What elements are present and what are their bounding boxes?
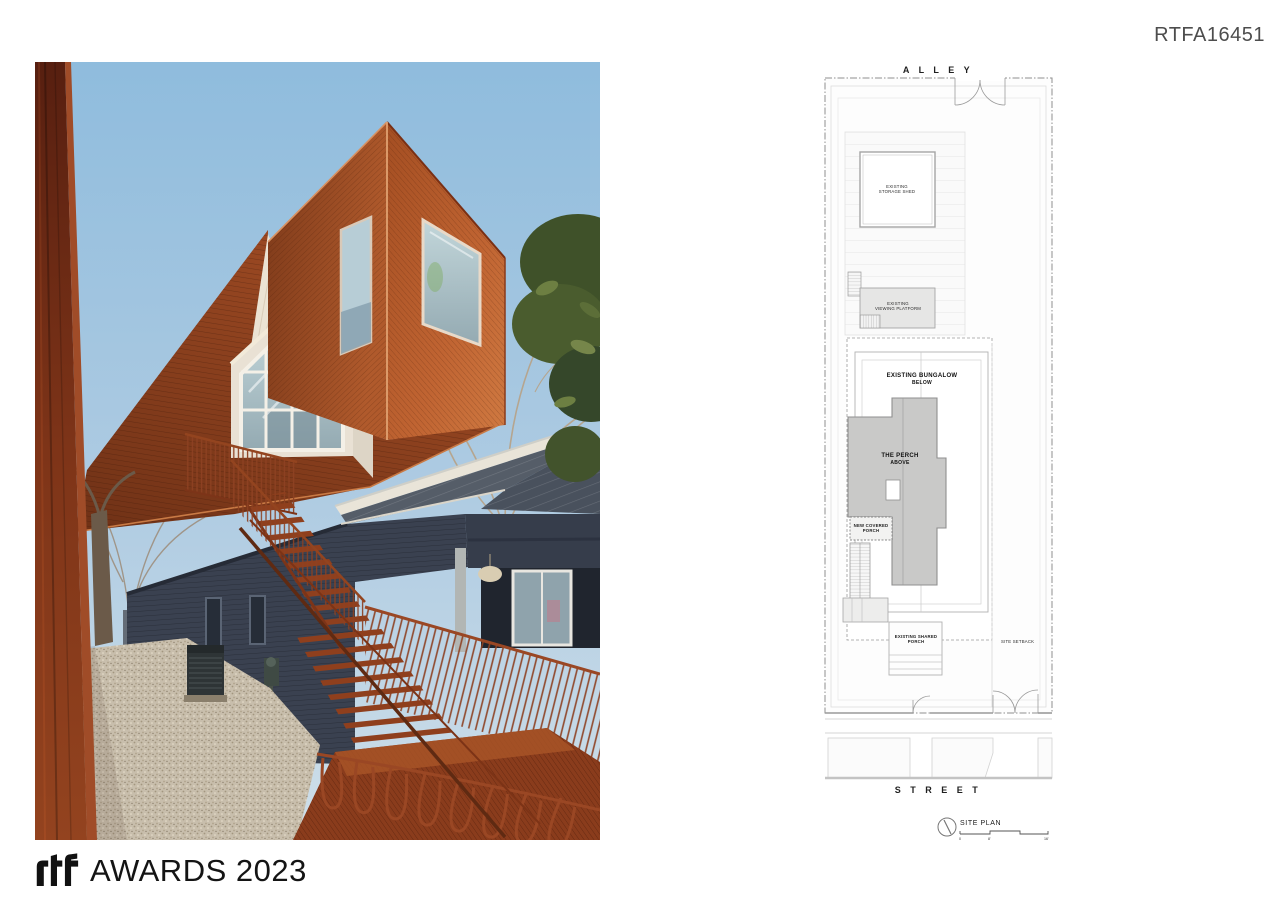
platform-label-2: VIEWING PLATFORM [875, 306, 921, 311]
street-label: S T R E E T [895, 785, 982, 795]
bungalow-window [206, 598, 221, 646]
footer-brand: AWARDS 2023 [35, 852, 307, 890]
scale-tick-1: 8' [988, 837, 991, 841]
site-plan-drawing: A L L E Y EXISTING STORAGE SHED [815, 55, 1065, 855]
new-covered-porch: NEW COVERED PORCH [850, 517, 892, 540]
viewing-platform: EXISTING VIEWING PLATFORM [860, 288, 935, 328]
presentation-board: RTFA16451 [0, 0, 1273, 900]
site-plan-svg: A L L E Y EXISTING STORAGE SHED [815, 55, 1065, 855]
bungalow-label-2: BELOW [912, 380, 932, 386]
scale-tick-0: 0 [959, 837, 961, 841]
photo-scene [35, 62, 600, 840]
platform-stair [848, 272, 861, 296]
storage-shed: EXISTING STORAGE SHED [860, 152, 935, 227]
ac-unit [184, 645, 227, 702]
shared-porch-label-2: PORCH [908, 639, 925, 644]
perch-label-1: THE PERCH [881, 453, 918, 459]
scale-bar [960, 831, 1048, 834]
bungalow-label-1: EXISTING BUNGALOW [887, 373, 958, 379]
alley-label: A L L E Y [903, 65, 973, 75]
rtf-logo-icon [35, 852, 79, 890]
board-id: RTFA16451 [1154, 24, 1265, 47]
setback-label: SITE SETBACK [1001, 639, 1034, 644]
sidewalk [825, 719, 1052, 778]
perch-window-left [341, 217, 371, 354]
perch-label-2: ABOVE [890, 460, 910, 466]
project-photo [35, 62, 600, 840]
shared-porch: EXISTING SHARED PORCH [889, 622, 942, 675]
site-plan-title: SITE PLAN [960, 820, 1001, 827]
scale-tick-2: 16' [1044, 837, 1049, 841]
shed-label-2: STORAGE SHED [879, 189, 915, 194]
bungalow-window [250, 596, 265, 644]
plan-legend: SITE PLAN 0 8' 16' [938, 818, 1049, 841]
covered-porch-label-2: PORCH [863, 528, 880, 533]
award-title: AWARDS 2023 [90, 853, 307, 889]
